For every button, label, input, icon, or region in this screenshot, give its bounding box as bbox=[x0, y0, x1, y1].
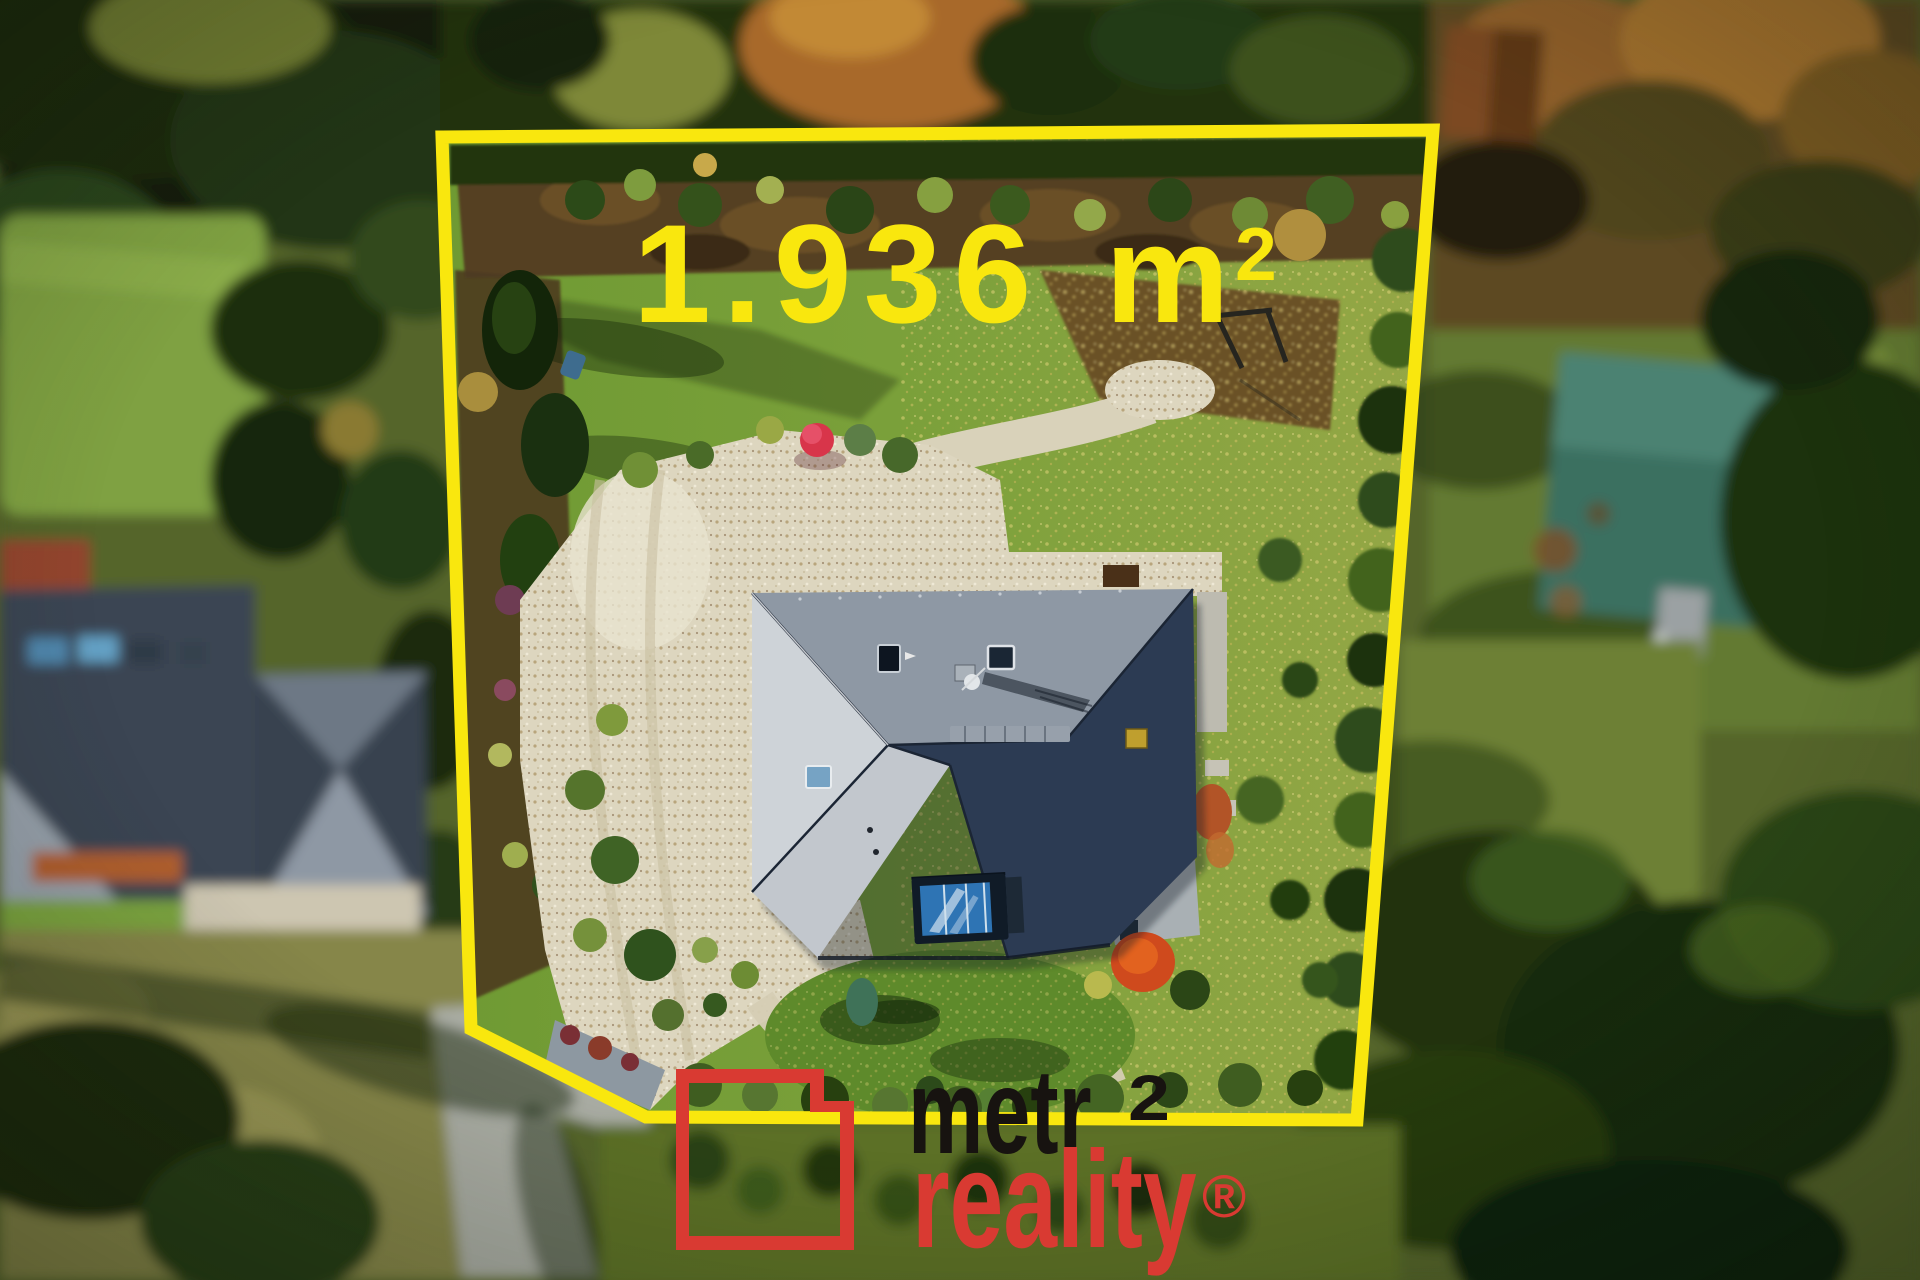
area-label-exponent: 2 bbox=[1235, 212, 1277, 296]
brand-word-reality: reality bbox=[912, 1123, 1197, 1277]
registered-trademark-icon: ® bbox=[1202, 1163, 1246, 1230]
area-label: 1.936 m 2 bbox=[633, 195, 1277, 352]
real-estate-aerial-photo: 1.936 m 2 metr 2 reality ® bbox=[0, 0, 1920, 1280]
aerial-photo-canvas: 1.936 m 2 metr 2 reality ® bbox=[0, 0, 1920, 1280]
area-label-unit: m bbox=[1105, 195, 1229, 352]
area-label-value: 1.936 bbox=[633, 195, 1043, 352]
